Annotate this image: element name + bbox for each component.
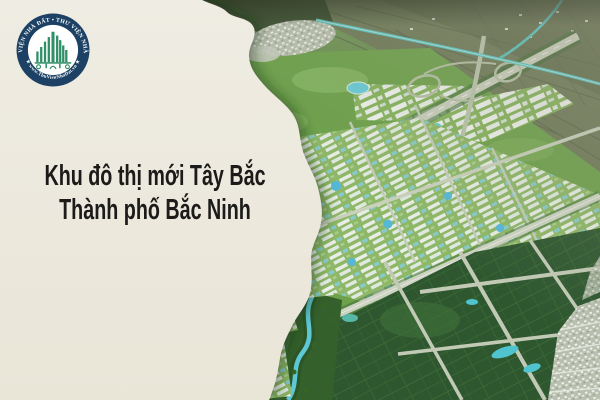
thu-vien-nha-dat-logo: THƯ VIỆN NHÀ ĐẤT • THƯ VIỆN NHÀ ĐẤT ★ ww…: [15, 12, 91, 88]
poster: THƯ VIỆN NHÀ ĐẤT • THƯ VIỆN NHÀ ĐẤT ★ ww…: [0, 0, 600, 400]
page-title: Khu đô thị mới Tây Bắc Thành phố Bắc Nin…: [9, 159, 301, 227]
title-line-2: Thành phố Bắc Ninh: [9, 193, 301, 227]
title-line-1: Khu đô thị mới Tây Bắc: [9, 159, 301, 193]
